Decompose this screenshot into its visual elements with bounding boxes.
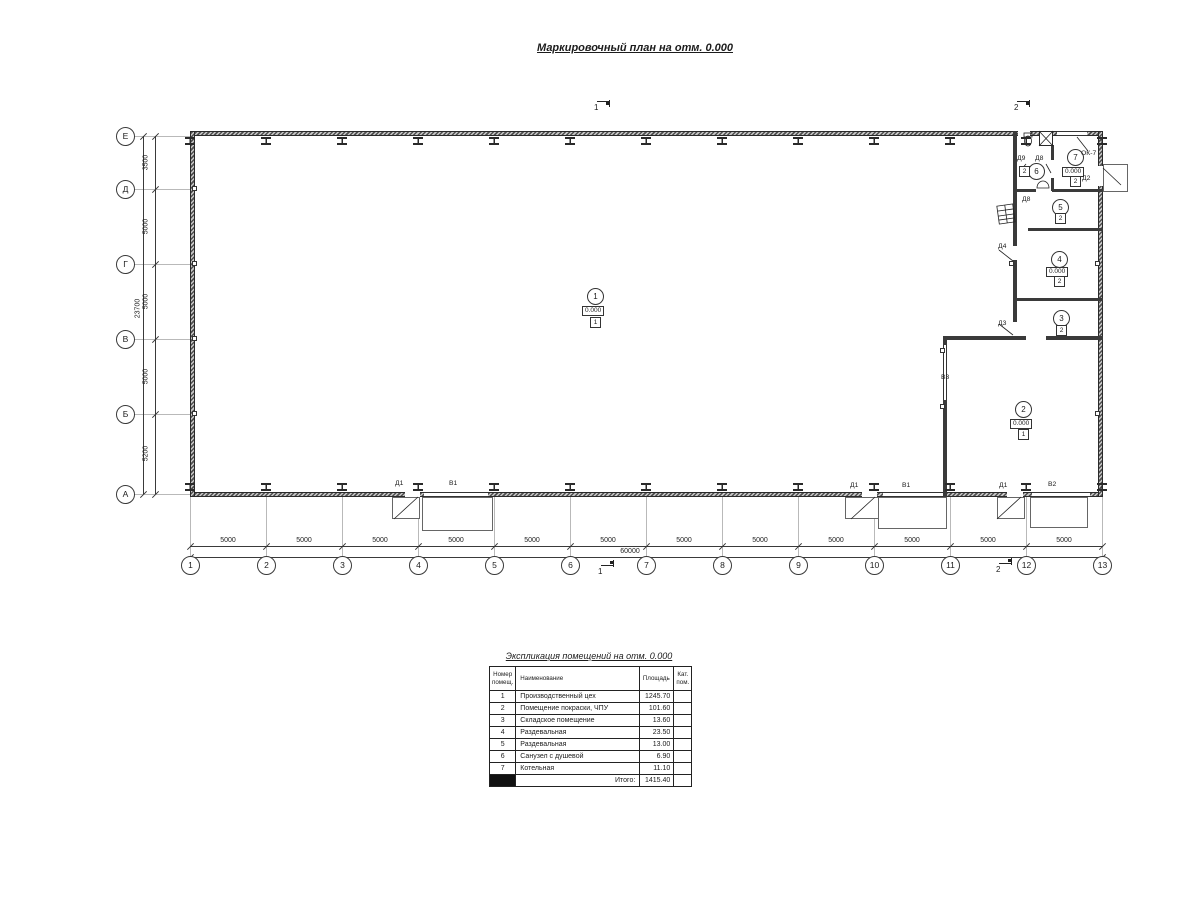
dim-text-left: 5200 [143, 441, 152, 467]
axis-bubble-col: 8 [713, 556, 732, 575]
porch [392, 497, 420, 519]
floor-plan: 1234567891011121350005000500050005000500… [0, 0, 1200, 700]
cell-num: 3 [490, 715, 516, 727]
category-mark: 2 [1019, 166, 1030, 177]
category-mark: 2 [1054, 276, 1065, 287]
cell-name: Производственный цех [516, 691, 640, 703]
opening-label: Д9 [1017, 155, 1025, 162]
section-mark-label: 2 [1014, 103, 1026, 112]
opening-label: Д8 [1022, 196, 1030, 203]
cell-num: 1 [490, 691, 516, 703]
dim-text-bottom: 5000 [436, 537, 476, 545]
wall-room5-top-right [1052, 189, 1103, 192]
axis-bubble-col: 13 [1093, 556, 1112, 575]
cell-area: 6.90 [640, 751, 674, 763]
axis-bubble-col: 9 [789, 556, 808, 575]
axis-bubble-row: Г [116, 255, 135, 274]
column-mark [192, 336, 197, 341]
dim-text-bottom: 5000 [512, 537, 552, 545]
partition-rooms-block-lower [1013, 260, 1017, 322]
cell-cat [674, 715, 692, 727]
column-mark [940, 404, 945, 409]
column-mark [1009, 261, 1014, 266]
axis-bubble-col: 11 [941, 556, 960, 575]
dim-text-left: 5000 [143, 288, 152, 314]
dim-text-bottom: 5000 [1044, 537, 1084, 545]
column-icon [869, 483, 879, 491]
axis-bubble-col: 6 [561, 556, 580, 575]
axis-bubble-row: А [116, 485, 135, 504]
column-icon [793, 483, 803, 491]
table-row: 6Санузел с душевой6.90 [490, 751, 692, 763]
column-icon [1021, 137, 1031, 145]
axis-line-col [722, 497, 723, 559]
table-row: 7Котельная11.10 [490, 763, 692, 775]
table-row: 2Помещение покраски, ЧПУ101.60 [490, 703, 692, 715]
dim-text-bottom: 5000 [816, 537, 856, 545]
gate-opening-v2 [1032, 492, 1090, 497]
opening-label: Д1 [850, 482, 858, 489]
cell-num: 5 [490, 739, 516, 751]
wall-top [190, 131, 1103, 136]
sink-icon [1037, 181, 1049, 188]
wall-bottom [190, 492, 1103, 497]
column-mark [940, 348, 945, 353]
section-mark-arrow [610, 561, 614, 564]
cell-num: 6 [490, 751, 516, 763]
opening-label: Д1 [999, 482, 1007, 489]
column-icon [337, 483, 347, 491]
cell-name: Раздевальная [516, 727, 640, 739]
wall-room2-top-right [1046, 336, 1103, 340]
total-cat [674, 775, 692, 787]
window-ok7 [1057, 131, 1087, 136]
axis-line-col [1026, 497, 1027, 559]
axis-bubble-col: 4 [409, 556, 428, 575]
door-opening-d2 [1098, 166, 1103, 186]
schedule-title: Экспликация помещений на отм. 0.000 [489, 651, 689, 661]
porch [1103, 164, 1128, 192]
porch [422, 497, 493, 531]
wall-room3-top [1016, 298, 1103, 301]
opening-label: Д1 [395, 480, 403, 487]
dim-text-bottom: 5000 [360, 537, 400, 545]
table-row: 3Складское помещение13.60 [490, 715, 692, 727]
column-icon [489, 137, 499, 145]
wall-room2-left-upper [943, 336, 947, 345]
cell-cat [674, 703, 692, 715]
axis-bubble-col: 1 [181, 556, 200, 575]
axis-line-col [1102, 497, 1103, 559]
column-icon [1097, 483, 1107, 491]
header-room-area: Площадь [640, 667, 674, 691]
cell-cat [674, 727, 692, 739]
cell-cat [674, 763, 692, 775]
total-label: Итого: [516, 775, 640, 787]
column-icon [717, 137, 727, 145]
dim-text-bottom: 5000 [284, 537, 324, 545]
axis-bubble-row: Б [116, 405, 135, 424]
cell-cat [674, 739, 692, 751]
axis-bubble-row: В [116, 330, 135, 349]
opening-label: Д8 [1035, 155, 1043, 162]
porch [878, 497, 947, 529]
partition-6-7-upper [1051, 145, 1054, 160]
axis-bubble-col: 12 [1017, 556, 1036, 575]
dim-text-bottom: 5000 [968, 537, 1008, 545]
gate-opening-v1-b [883, 492, 943, 497]
column-icon [641, 483, 651, 491]
column-mark [1095, 261, 1100, 266]
cell-area: 1245.70 [640, 691, 674, 703]
total-fill-cell [490, 775, 516, 787]
axis-line-col [266, 497, 267, 559]
column-mark [192, 411, 197, 416]
room-number-bubble: 4 [1051, 251, 1068, 268]
section-mark-label: 1 [598, 567, 610, 576]
axis-bubble-col: 5 [485, 556, 504, 575]
room-number-bubble: 2 [1015, 401, 1032, 418]
axis-line-col [494, 497, 495, 559]
cell-num: 2 [490, 703, 516, 715]
column-mark [1095, 411, 1100, 416]
window-v3 [943, 345, 947, 400]
elevation-mark: 0.000 [582, 306, 604, 316]
table-row: 4Раздевальная23.50 [490, 727, 692, 739]
column-icon [185, 483, 195, 491]
column-icon [1021, 483, 1031, 491]
dim-text-left: 5000 [143, 213, 152, 239]
opening-label: В1 [902, 482, 910, 489]
opening-label: Д2 [1082, 175, 1090, 182]
room-number-bubble: 6 [1028, 163, 1045, 180]
axis-line-col [798, 497, 799, 559]
section-mark-arrow [606, 102, 610, 105]
section-mark-arrow [1026, 102, 1030, 105]
column-icon [1097, 137, 1107, 145]
column-icon [793, 137, 803, 145]
opening-label: Д4 [998, 243, 1006, 250]
opening-label: Д3 [998, 320, 1006, 327]
column-icon [489, 483, 499, 491]
column-icon [641, 137, 651, 145]
category-mark: 1 [590, 317, 601, 328]
column-icon [413, 483, 423, 491]
gate-opening-v1-a [424, 492, 488, 497]
section-mark-label: 2 [996, 565, 1008, 574]
vent-shaft [1039, 131, 1053, 146]
dim-text-bottom: 5000 [588, 537, 628, 545]
wall-room5-top-left [1016, 189, 1036, 192]
axis-line-col [190, 497, 191, 559]
wall-room2-top-left [943, 336, 1026, 340]
porch [845, 497, 880, 519]
column-icon [413, 137, 423, 145]
room-schedule-table: Номер помещ. Наименование Площадь Кат. п… [489, 666, 692, 787]
table-header-row: Номер помещ. Наименование Площадь Кат. п… [490, 667, 692, 691]
axis-bubble-row: Е [116, 127, 135, 146]
dim-text-left: 3500 [143, 149, 152, 175]
cell-num: 7 [490, 763, 516, 775]
axis-bubble-col: 2 [257, 556, 276, 575]
column-icon [261, 137, 271, 145]
column-icon [717, 483, 727, 491]
column-icon [565, 483, 575, 491]
cell-name: Складское помещение [516, 715, 640, 727]
cell-cat [674, 691, 692, 703]
dim-text-bottom: 5000 [740, 537, 780, 545]
cell-area: 13.60 [640, 715, 674, 727]
column-mark [192, 186, 197, 191]
dim-text-bottom: 5000 [664, 537, 704, 545]
dim-text-bottom: 5000 [892, 537, 932, 545]
opening-label: В2 [1048, 481, 1056, 488]
elevation-mark: 0.000 [1010, 419, 1032, 429]
opening-label: ОК-7 [1081, 150, 1096, 157]
porch [1030, 497, 1088, 528]
section-mark-label: 1 [594, 103, 606, 112]
category-mark: 2 [1056, 325, 1067, 336]
table-row: 1Производственный цех1245.70 [490, 691, 692, 703]
column-icon [945, 483, 955, 491]
total-value: 1415.40 [640, 775, 674, 787]
wall-room4-top [1028, 228, 1103, 231]
door-opening-d1-a [405, 492, 420, 497]
dim-text-left: 5000 [143, 363, 152, 389]
cell-name: Помещение покраски, ЧПУ [516, 703, 640, 715]
axis-line-col [950, 497, 951, 559]
header-room-cat: Кат. пом. [674, 667, 692, 691]
category-mark: 2 [1055, 213, 1066, 224]
axis-bubble-row: Д [116, 180, 135, 199]
door-opening-d9 [1018, 131, 1030, 136]
cell-name: Раздевальная [516, 739, 640, 751]
cell-name: Санузел с душевой [516, 751, 640, 763]
section-mark-arrow [1008, 559, 1012, 562]
dim-text-bottom-total: 60000 [590, 548, 670, 556]
column-icon [869, 137, 879, 145]
axis-bubble-col: 10 [865, 556, 884, 575]
column-icon [945, 137, 955, 145]
axis-bubble-col: 7 [637, 556, 656, 575]
cell-area: 11.10 [640, 763, 674, 775]
cell-cat [674, 751, 692, 763]
cell-num: 4 [490, 727, 516, 739]
header-room-name: Наименование [516, 667, 640, 691]
door-opening-d1-c [1007, 492, 1023, 497]
dim-text-left-total: 23700 [135, 296, 144, 322]
category-mark: 2 [1070, 176, 1081, 187]
opening-label: В1 [449, 480, 457, 487]
drawing-sheet: Маркировочный план на отм. 0.000 [0, 0, 1200, 900]
category-mark: 1 [1018, 429, 1029, 440]
column-icon [185, 137, 195, 145]
header-room-number: Номер помещ. [490, 667, 516, 691]
cell-name: Котельная [516, 763, 640, 775]
opening-label: В3 [941, 374, 949, 381]
cell-area: 13.00 [640, 739, 674, 751]
porch [997, 497, 1025, 519]
axis-bubble-col: 3 [333, 556, 352, 575]
dim-text-bottom: 5000 [208, 537, 248, 545]
cell-area: 23.50 [640, 727, 674, 739]
column-mark [192, 261, 197, 266]
cell-area: 101.60 [640, 703, 674, 715]
table-row: 5Раздевальная13.00 [490, 739, 692, 751]
door-opening-d1-b [862, 492, 877, 497]
room-number-bubble: 1 [587, 288, 604, 305]
axis-line-col [570, 497, 571, 559]
axis-line-col [342, 497, 343, 559]
table-total-row: Итого: 1415.40 [490, 775, 692, 787]
column-icon [337, 137, 347, 145]
column-icon [565, 137, 575, 145]
column-icon [261, 483, 271, 491]
